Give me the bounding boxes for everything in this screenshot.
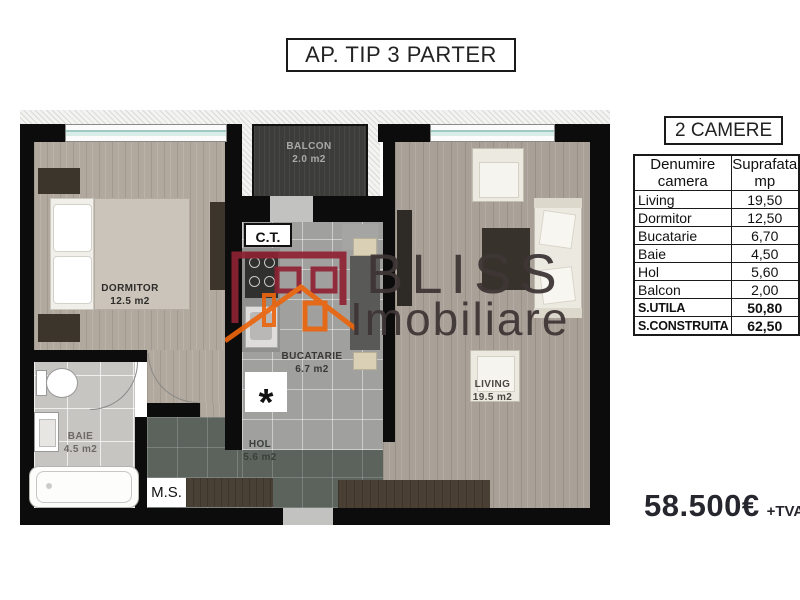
bed-pillow	[53, 204, 92, 252]
wall	[20, 350, 147, 362]
wall	[147, 403, 200, 417]
table-row: Dormitor12,50	[634, 209, 799, 227]
dormitor-dresser	[210, 202, 225, 290]
price: 58.500€ +TVA	[644, 488, 800, 524]
table-row: Living19,50	[634, 191, 799, 209]
price-amount: 58.500€	[644, 488, 760, 524]
bathtub-drain	[46, 483, 52, 489]
table-row-total-utila: S.UTILA50,80	[634, 299, 799, 317]
page-title: AP. TIP 3 PARTER	[286, 38, 516, 72]
room-label-dormitor: DORMITOR 12.5 m2	[75, 282, 185, 308]
wall	[20, 508, 283, 525]
table-row: Bucatarie6,70	[634, 227, 799, 245]
wall	[590, 124, 610, 508]
toilet-icon	[46, 368, 78, 398]
entrance-door-threshold	[283, 508, 333, 525]
window-living	[430, 124, 555, 142]
wall	[242, 196, 270, 222]
ms-box: M.S.	[147, 478, 186, 507]
price-vat: +TVA	[767, 503, 800, 520]
nightstand	[38, 314, 80, 342]
table-header-row: Denumire camera Suprafata mp	[634, 155, 799, 191]
sofa-armrest	[534, 198, 582, 208]
apartment-type-badge: 2 CAMERE	[664, 116, 783, 145]
col-header-denumire: Denumire camera	[634, 155, 731, 191]
table-row: Balcon2,00	[634, 281, 799, 299]
room-label-bucatarie: BUCATARIE 6.7 m2	[257, 350, 367, 376]
dormitor-door-opening	[200, 403, 225, 417]
table-row-total-construita: S.CONSTRUITA62,50	[634, 317, 799, 336]
area-table: Denumire camera Suprafata mp Living19,50…	[633, 154, 800, 336]
agency-logo-icon	[225, 243, 357, 351]
washer-box: *	[245, 372, 287, 412]
col-header-suprafata: Suprafata mp	[731, 155, 799, 191]
balcony-door-threshold	[270, 196, 313, 222]
room-label-balcon: BALCON 2.0 m2	[264, 140, 354, 166]
table-row: Hol5,60	[634, 263, 799, 281]
hol-closet	[186, 478, 273, 507]
armchair-seat	[479, 162, 519, 198]
wall	[333, 508, 610, 525]
room-label-living: LIVING 19.5 m2	[440, 378, 545, 404]
room-label-hol: HOL 5.6 m2	[220, 438, 300, 464]
window-dormitor	[65, 124, 227, 142]
watermark-brand-line2: Imobiliare	[350, 292, 569, 346]
living-console	[338, 480, 490, 508]
floorplan-flyer: AP. TIP 3 PARTER 2 CAMERE Denumire camer…	[0, 0, 800, 600]
nightstand	[38, 168, 80, 194]
room-label-baie: BAIE 4.5 m2	[48, 430, 113, 456]
wall	[313, 196, 383, 222]
table-row: Baie4,50	[634, 245, 799, 263]
wall	[20, 124, 34, 508]
